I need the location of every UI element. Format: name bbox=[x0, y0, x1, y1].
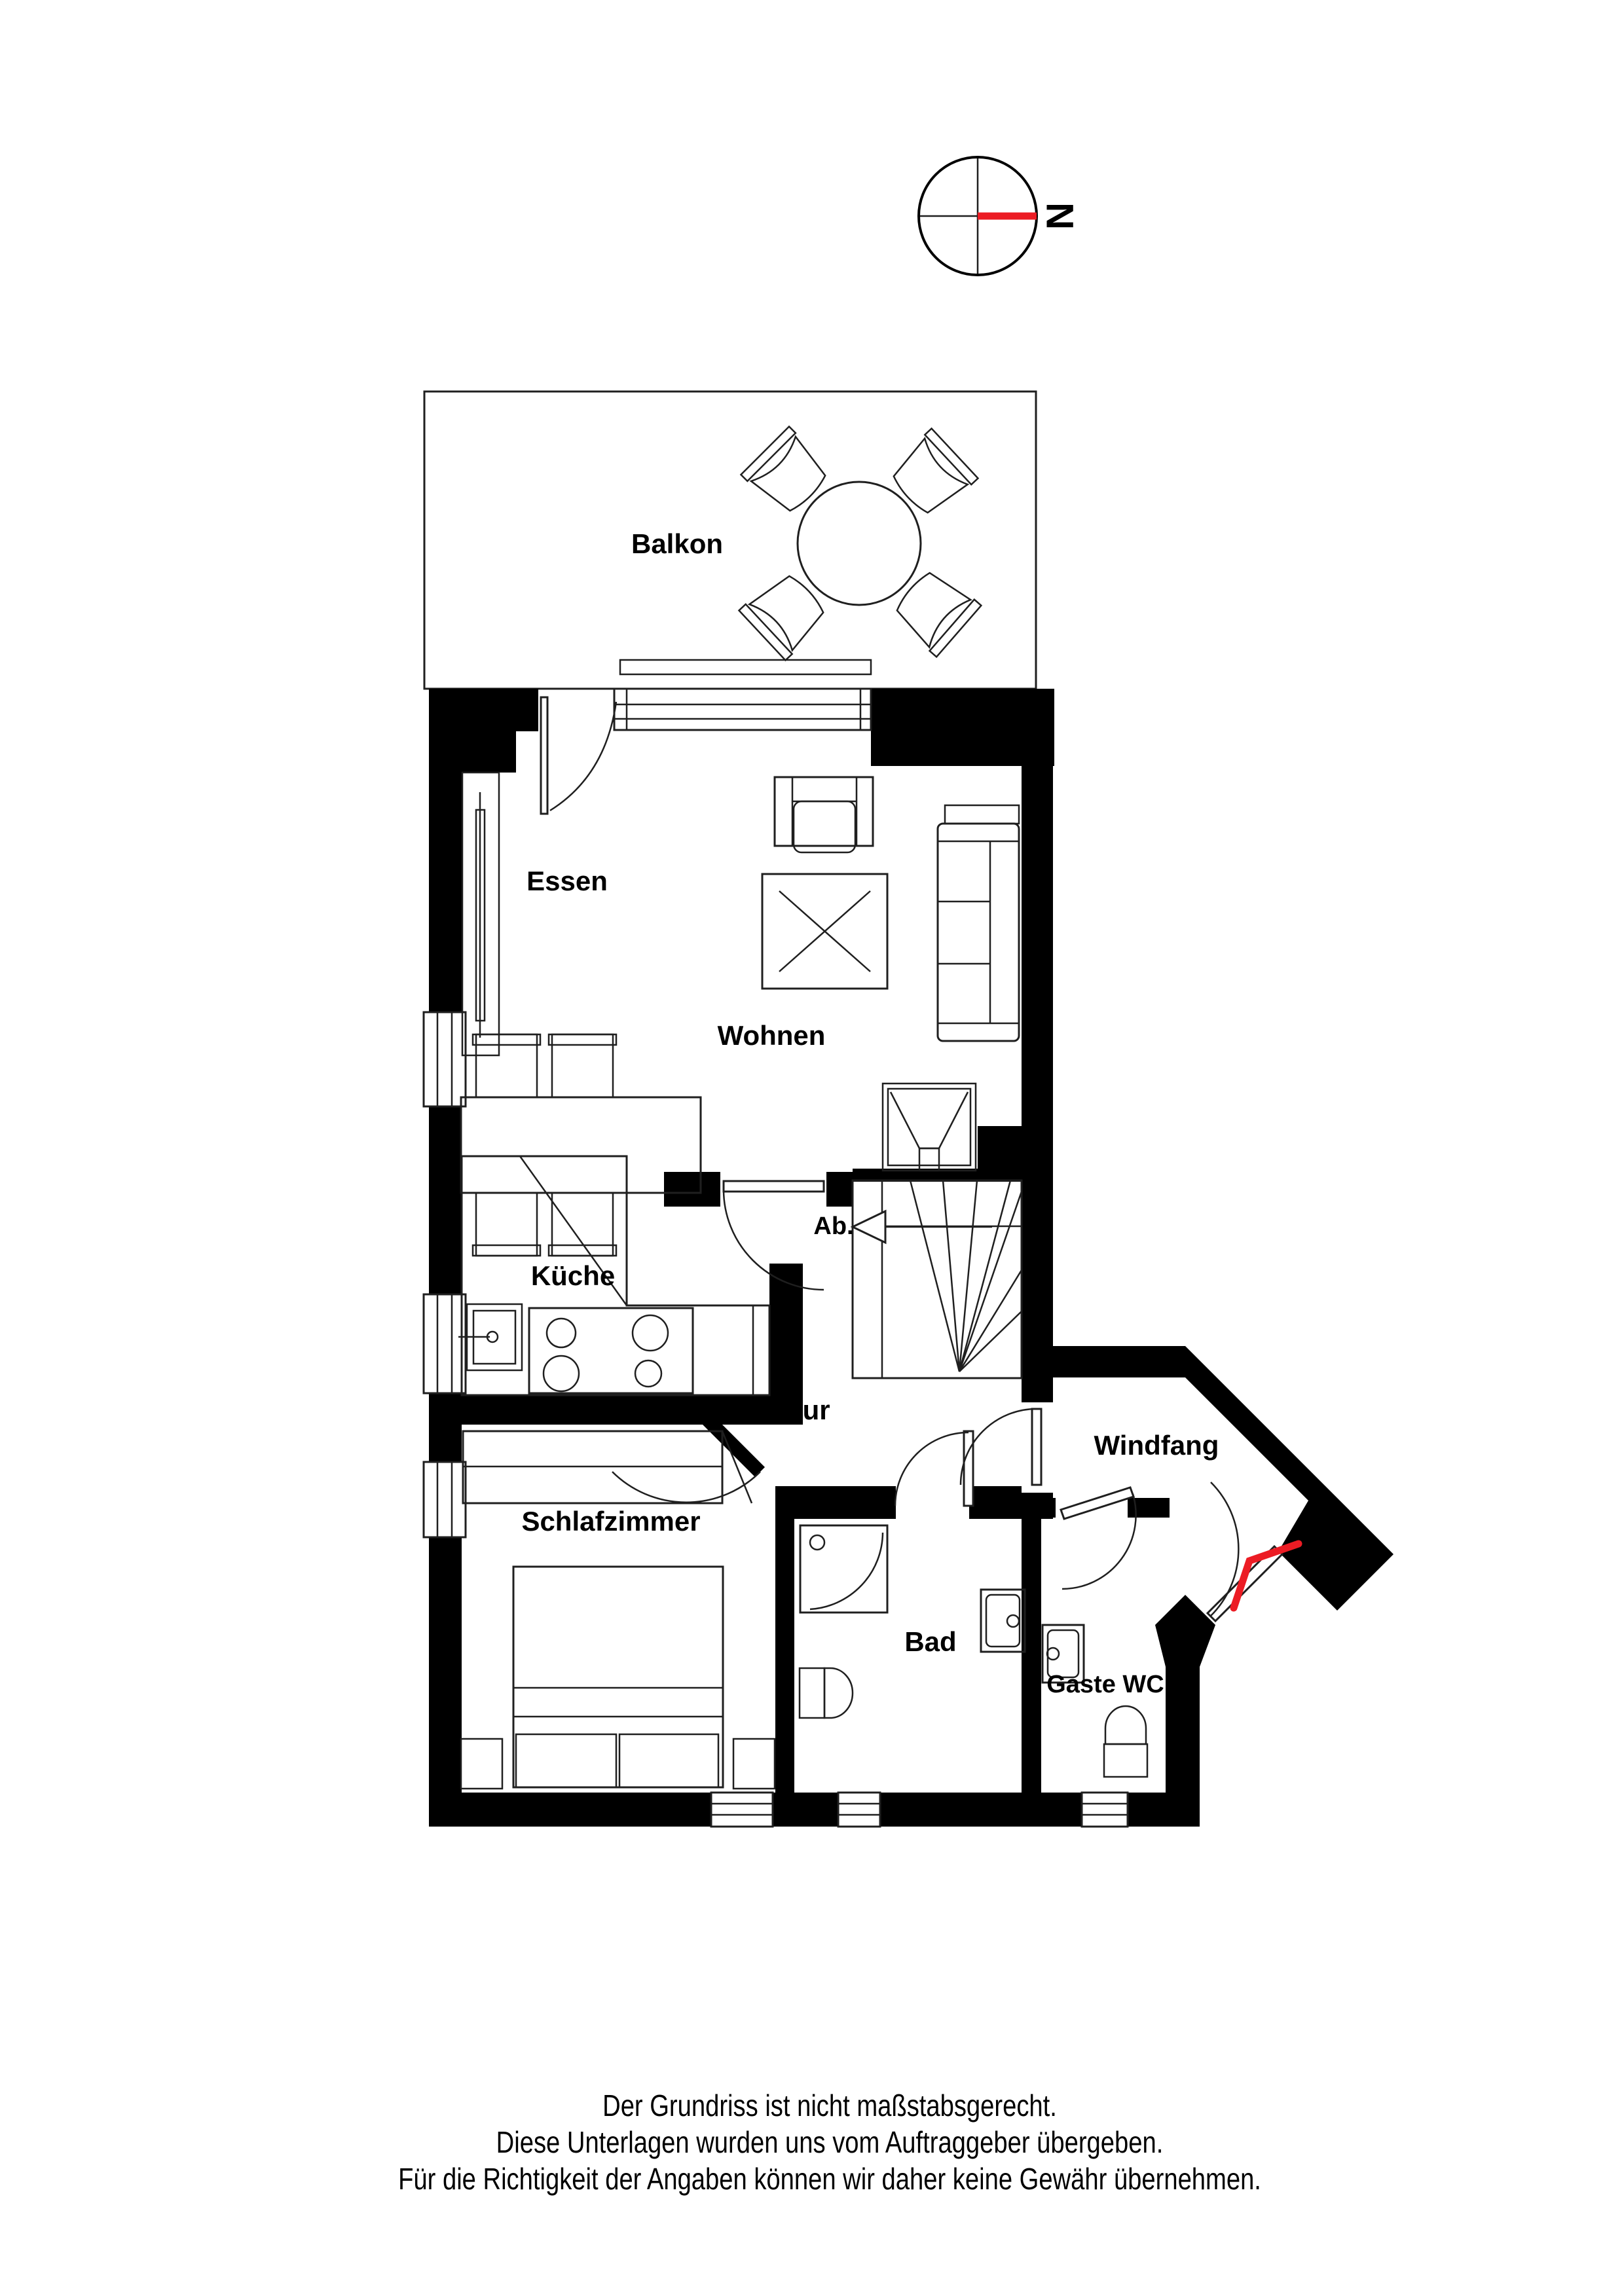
bad-sink bbox=[981, 1590, 1025, 1652]
dining-chair bbox=[549, 1034, 616, 1097]
armchair bbox=[775, 777, 873, 852]
balcony-chair bbox=[741, 426, 834, 520]
balcony-window bbox=[614, 689, 871, 730]
dining-chair bbox=[473, 1034, 540, 1097]
kitchen-sink bbox=[458, 1304, 522, 1370]
floorplan-page: N bbox=[0, 0, 1624, 2296]
radiator bbox=[462, 773, 499, 1055]
gaeste-wc-door bbox=[1061, 1487, 1136, 1589]
balcony-chair bbox=[739, 567, 833, 661]
stove bbox=[529, 1308, 693, 1393]
label-gaeste-wc: Gaste WC bbox=[1046, 1671, 1164, 1698]
nightstand bbox=[733, 1739, 775, 1789]
label-bad: Bad bbox=[904, 1626, 956, 1657]
label-wohnen: Wohnen bbox=[718, 1020, 826, 1051]
label-windfang: Windfang bbox=[1094, 1430, 1219, 1461]
wc-toilet bbox=[1104, 1706, 1147, 1777]
schlafzimmer-bottom-window bbox=[711, 1793, 773, 1827]
disclaimer: Der Grundriss ist nicht maßstabsgerecht.… bbox=[398, 2089, 1261, 2196]
balcony bbox=[424, 392, 1036, 689]
dining-chair bbox=[549, 1193, 616, 1256]
bed bbox=[513, 1567, 723, 1787]
staircase bbox=[853, 1180, 1022, 1378]
compass-north-label: N bbox=[1039, 202, 1081, 230]
balcony-door bbox=[541, 697, 616, 814]
doors bbox=[541, 697, 1282, 1621]
balcony-table bbox=[798, 482, 921, 605]
bad-window bbox=[838, 1793, 880, 1827]
balcony-chair bbox=[885, 429, 978, 522]
kueche-window bbox=[424, 1294, 466, 1393]
dining-chair bbox=[473, 1193, 540, 1256]
dining-set bbox=[461, 1034, 701, 1256]
balcony-chair bbox=[888, 564, 981, 657]
essen-window bbox=[424, 1012, 466, 1106]
disclaimer-line-3: Für die Richtigkeit der Angaben können w… bbox=[398, 2162, 1261, 2196]
bad-door bbox=[895, 1431, 973, 1506]
wc-window bbox=[1082, 1793, 1128, 1827]
nightstand bbox=[461, 1739, 502, 1789]
compass-icon: N bbox=[919, 157, 1081, 275]
vent-shaft bbox=[883, 1084, 976, 1171]
disclaimer-line-1: Der Grundriss ist nicht maßstabsgerecht. bbox=[602, 2089, 1057, 2123]
floorplan-drawing: N bbox=[0, 0, 1624, 2296]
wardrobe bbox=[463, 1431, 752, 1503]
disclaimer-line-2: Diese Unterlagen wurden uns vom Auftragg… bbox=[496, 2126, 1164, 2159]
label-flur: Flur bbox=[778, 1394, 830, 1425]
label-essen: Essen bbox=[526, 866, 608, 896]
label-schlafzimmer: Schlafzimmer bbox=[521, 1506, 700, 1537]
coffee-table bbox=[762, 874, 887, 989]
label-kueche: Küche bbox=[531, 1260, 615, 1291]
sofa bbox=[938, 805, 1019, 1041]
label-balkon: Balkon bbox=[631, 528, 723, 559]
shower bbox=[800, 1525, 887, 1613]
schlafzimmer-window bbox=[424, 1462, 466, 1537]
bad-toilet bbox=[800, 1668, 853, 1718]
label-ab: Ab. bbox=[813, 1212, 853, 1240]
